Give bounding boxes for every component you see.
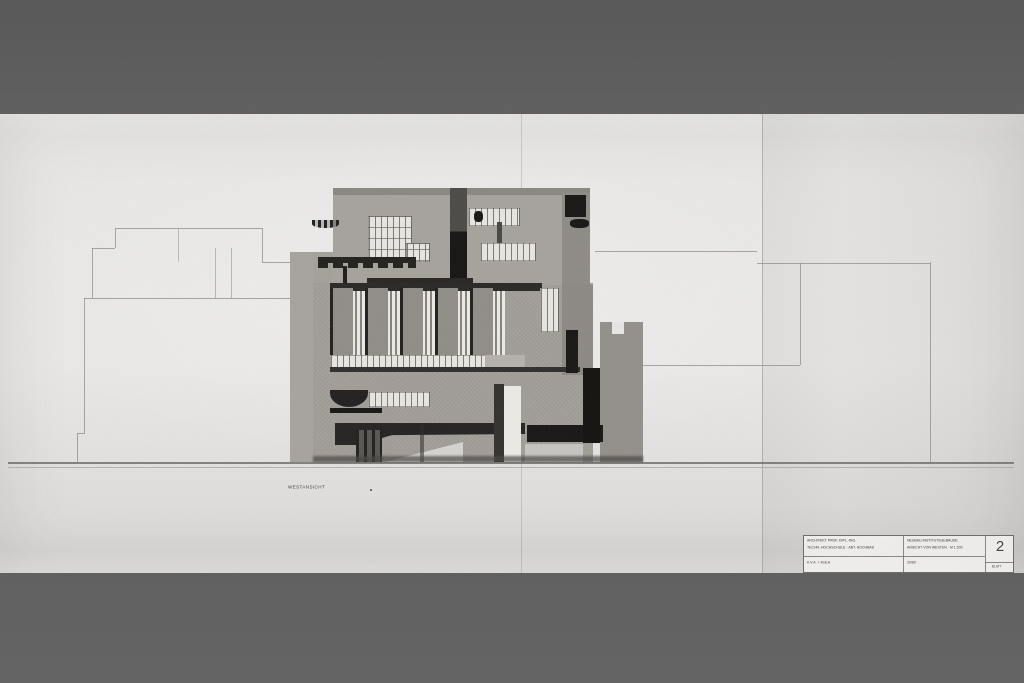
title-block: ARCHITEKT PROF. DIPL.-ING. TECHN. HOCHSC… [803,535,1014,573]
window-dark-spot [474,211,483,222]
caption-mark [370,489,372,491]
titleblock-divider [985,562,1013,563]
titleblock-divider [903,536,904,572]
outline-line [262,228,263,262]
zigzag-teeth [318,263,416,268]
building-crenellated-mass [600,322,643,462]
outline-line [92,248,115,249]
shadow-slot-center [450,188,467,285]
building-elevation [288,185,650,469]
outline-line [115,228,263,229]
base-shadow [313,456,643,462]
pylon [435,288,458,362]
sheet-caption: BLATT [992,565,1002,568]
titleblock-divider [985,536,986,572]
black-shadow-vertical [583,368,600,443]
outline-line [84,298,290,299]
window-strip-mid [368,392,430,407]
pylon [470,288,493,362]
screenshot-stage: WESTANSICHT ARCHITEKT PROF. DIPL.-ING. T… [0,0,1024,683]
outline-line [231,248,232,298]
titleblock-divider [804,556,985,557]
paper-shade-right [762,114,1024,573]
white-column [504,386,521,462]
pylon [400,288,423,362]
outline-line [178,228,179,262]
titleblock-text: ANSICHT VON WESTEN · M 1:200 [907,546,963,550]
titleblock-text: TECHN. HOCHSCHULE · ABT. HOCHBAU [807,546,874,550]
outline-line [84,298,85,433]
outline-line [262,262,290,263]
window-strip-lower-right [480,243,536,261]
letterbox-bottom-bar [0,573,1024,683]
drawing-caption: WESTANSICHT [288,485,325,490]
titleblock-text: 20/60 [907,561,916,565]
outline-line [757,263,930,264]
outline-line [92,248,93,298]
titleblock-text: K.V.A. + M.B.A. [807,561,831,565]
outline-line [215,248,216,298]
outline-line [77,433,85,434]
outline-line [643,365,800,366]
tower-shadow-rect [565,195,586,217]
wavy-ornament [312,220,339,228]
building-left-wing [290,252,313,462]
dark-mullion [497,222,502,244]
outline-line [930,262,931,462]
sheet-number: 2 [988,539,1012,554]
black-bar [330,408,382,413]
crenellation-notch [612,322,624,334]
paper-fold-line [762,114,763,573]
pylon [330,288,353,362]
outline-line [115,228,116,248]
column-shadow-strip [494,384,504,462]
outline-line [800,263,801,365]
outline-line [77,433,78,462]
drawing-photo: WESTANSICHT ARCHITEKT PROF. DIPL.-ING. T… [0,114,1024,573]
pylon [365,288,388,362]
clerestory-extension [485,355,525,367]
clerestory-shadow [330,367,580,372]
tower-slot [566,330,578,373]
letterbox-top-bar [0,0,1024,114]
titleblock-text: ARCHITEKT PROF. DIPL.-ING. [807,539,856,543]
tower-shadow-blob [570,219,589,228]
titleblock-text: NEUBAU INSTITUTSGEBÄUDE [907,539,958,543]
white-slot [540,288,559,332]
